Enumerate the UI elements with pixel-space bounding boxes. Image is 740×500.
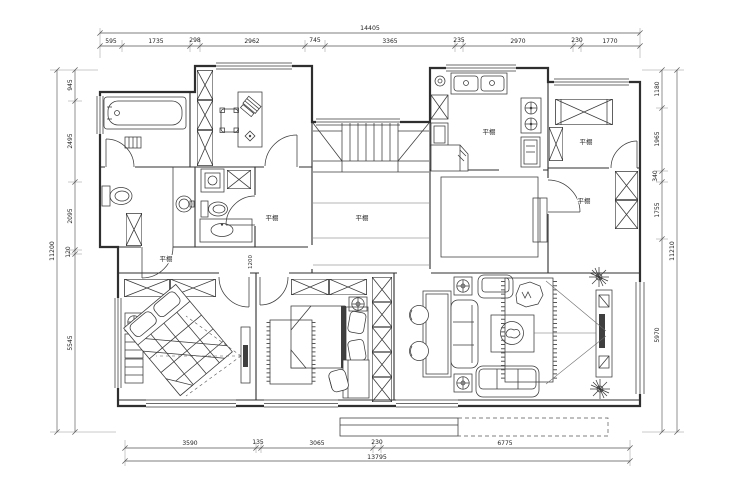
corridor-ceiling-lines <box>313 203 429 265</box>
bathroom-2 <box>200 169 252 242</box>
desk <box>238 92 262 147</box>
balcony <box>340 418 608 436</box>
ceiling-label: 平棚 <box>580 137 594 146</box>
dim-seg: 1180 <box>654 81 661 96</box>
dim-seg: 3065 <box>309 440 324 447</box>
dim-seg: 230 <box>371 439 383 446</box>
floor-plan-drawing: 平棚 平棚 平棚 平棚 平棚 平棚 1200 14405 595 1735 29… <box>0 0 740 500</box>
dining-area-outline <box>441 177 538 257</box>
living-room <box>410 267 613 399</box>
dimension-right: 1180 1965 340 1755 5970 11210 <box>642 67 684 434</box>
dimension-top: 14405 595 1735 298 2962 745 3365 235 297… <box>97 25 642 58</box>
dim-total-bottom: 13795 <box>367 454 387 461</box>
bedroom-2 <box>269 277 392 402</box>
dim-total-top: 14405 <box>360 25 380 32</box>
dim-seg: 230 <box>571 37 583 44</box>
right-top-room <box>549 99 612 161</box>
ceiling-label: 平棚 <box>266 213 280 222</box>
ceiling-label: 平棚 <box>578 196 592 205</box>
dimension-bottom: 3590 135 3065 230 6775 13795 <box>122 439 632 466</box>
wall-openings <box>105 163 637 277</box>
ceiling-label: 平棚 <box>356 213 370 222</box>
bathroom-1 <box>104 97 186 148</box>
dim-seg: 2970 <box>510 38 525 45</box>
dim-seg: 1965 <box>654 131 661 146</box>
bathtub <box>104 97 186 129</box>
bed-diagonal <box>124 284 233 395</box>
bedroom-1 <box>124 279 250 396</box>
toilet2-tank <box>201 201 208 217</box>
staircase <box>313 123 429 172</box>
sofa-3seat <box>476 366 539 397</box>
dim-total-right: 11210 <box>669 241 676 261</box>
dim-seg: 745 <box>309 37 321 44</box>
plant <box>590 379 610 399</box>
round-basin <box>176 196 192 212</box>
dim-seg: 1735 <box>148 38 163 45</box>
dining-hall <box>441 177 538 257</box>
ceiling-label: 平棚 <box>483 127 497 136</box>
coffee-table <box>491 315 534 352</box>
dim-seg: 1770 <box>602 38 617 45</box>
dim-seg: 5545 <box>67 335 74 350</box>
dim-seg: 3365 <box>382 38 397 45</box>
toilet-tank <box>102 186 110 206</box>
dim-seg: 235 <box>453 37 465 44</box>
toilet-room <box>102 167 195 247</box>
ceiling-label: 平棚 <box>160 254 174 263</box>
dim-seg: 135 <box>252 439 264 446</box>
dim-seg: 340 <box>652 170 659 182</box>
dim-seg: 2962 <box>244 38 259 45</box>
study <box>197 70 262 165</box>
dim-seg: 595 <box>105 38 117 45</box>
dim-seg: 2095 <box>67 208 74 223</box>
room-labels: 平棚 平棚 平棚 平棚 平棚 平棚 1200 <box>160 127 594 269</box>
single-sofa <box>451 300 478 368</box>
dim-seg: 3590 <box>182 440 197 447</box>
dim-seg: 120 <box>65 246 72 258</box>
dim-seg: 5970 <box>654 327 661 342</box>
dining-chair <box>410 306 429 325</box>
dim-total-left: 11200 <box>49 241 56 261</box>
floor-plan-page: 平棚 平棚 平棚 平棚 平棚 平棚 1200 14405 595 1735 29… <box>0 0 740 500</box>
washing-machine <box>201 169 224 192</box>
kitchen <box>431 73 541 171</box>
dining-chair <box>410 342 429 361</box>
dimension-left: 945 2495 2095 120 5545 11200 <box>49 67 116 434</box>
dim-seg: 298 <box>189 37 201 44</box>
dim-seg: 945 <box>67 79 74 91</box>
dim-seg: 1755 <box>654 202 661 217</box>
dim-seg: 6775 <box>497 440 512 447</box>
plant <box>589 267 609 287</box>
dim-seg: 2495 <box>67 133 74 148</box>
headboard <box>346 307 368 367</box>
dining-table <box>423 291 451 377</box>
tv <box>599 314 605 348</box>
interior-dimension: 1200 <box>248 255 254 269</box>
fridge <box>431 145 468 171</box>
bed <box>291 306 345 368</box>
